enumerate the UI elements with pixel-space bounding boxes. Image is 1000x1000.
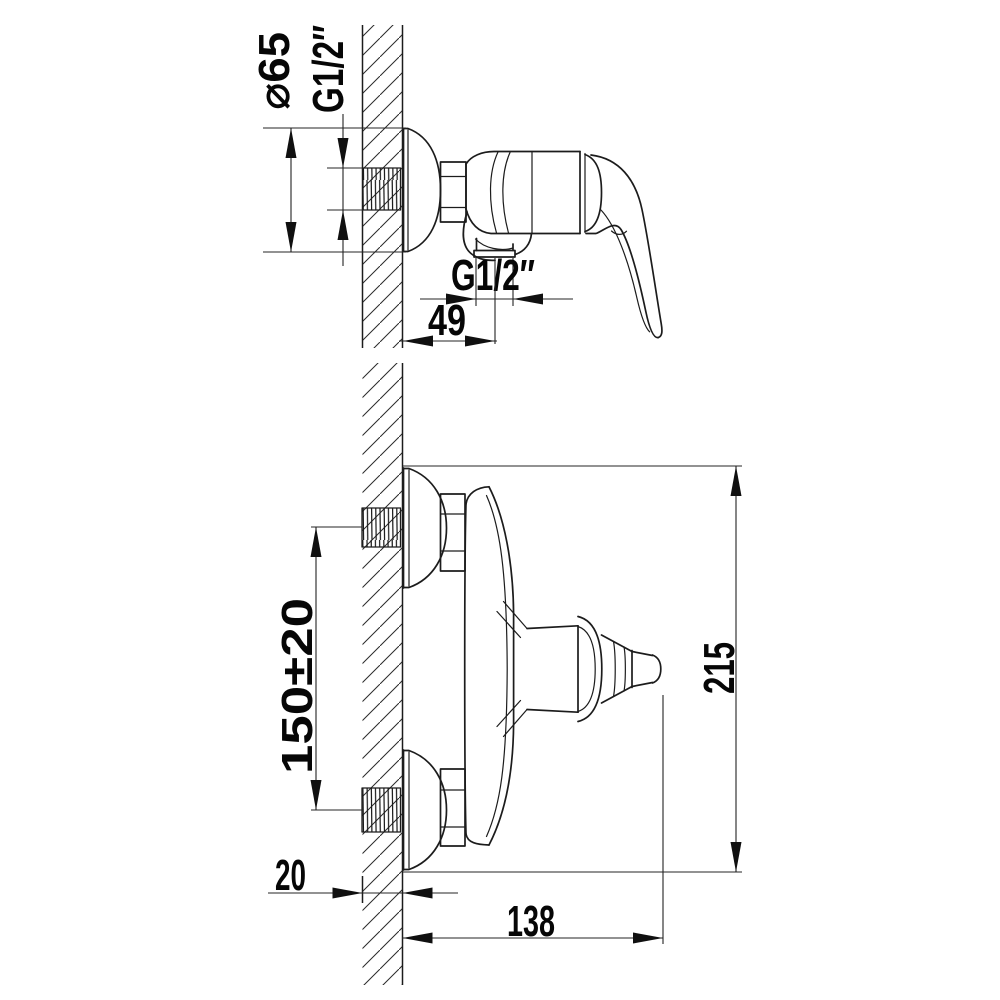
inlet-thread-lower — [362, 788, 401, 832]
dim-inlet-thread: G1/2″ — [304, 25, 363, 266]
plan-view — [362, 468, 661, 870]
dim-label-20: 20 — [275, 851, 306, 900]
dim-label-49: 49 — [428, 296, 466, 345]
lever-handle-side — [586, 155, 662, 338]
dim-projection: 138 — [403, 695, 664, 946]
dim-overall-width: 215 — [403, 466, 744, 872]
faucet-dimension-drawing: ⌀65 G1/2″ G1/2″ 49 150±20 — [0, 0, 1000, 1000]
wall-hatch-lower — [363, 363, 403, 985]
dim-label-138: 138 — [507, 897, 555, 946]
cartridge-tower-plan — [497, 602, 578, 737]
mixer-body-side — [466, 152, 602, 234]
inlet-thread-upper — [362, 508, 401, 547]
inlet-thread-side — [363, 168, 401, 210]
drawing-canvas: ⌀65 G1/2″ G1/2″ 49 150±20 — [0, 0, 1000, 1000]
side-view — [363, 129, 662, 338]
dim-label-215: 215 — [695, 642, 744, 694]
lever-handle-plan — [578, 617, 661, 722]
dim-label-outlet-thread: G1/2″ — [451, 251, 535, 300]
escutcheon-side — [404, 129, 441, 252]
dim-inlet-spacing: 150±20 — [273, 527, 362, 810]
connector-nut-side — [441, 162, 467, 222]
dim-label-dia65: ⌀65 — [250, 32, 299, 110]
dim-label-inlet-thread: G1/2″ — [304, 25, 353, 113]
connector-nut-lower — [441, 769, 466, 846]
dim-label-150-20: 150±20 — [273, 598, 322, 774]
mixer-body-plan — [465, 487, 514, 845]
